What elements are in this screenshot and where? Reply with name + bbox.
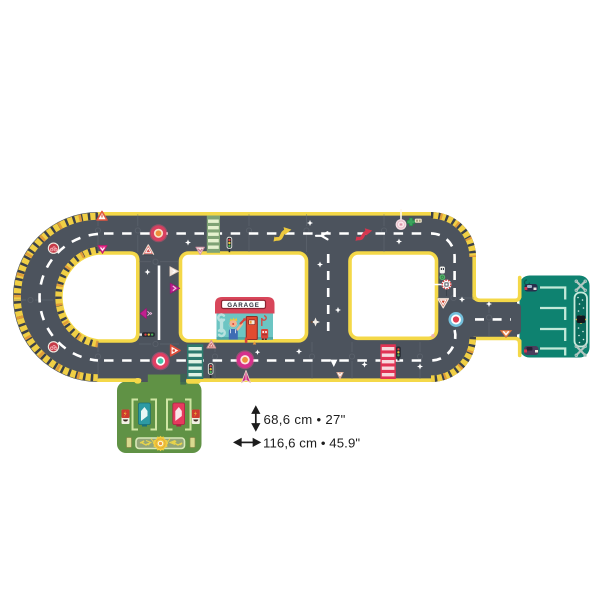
svg-text:116,6 cm • 45.9": 116,6 cm • 45.9" bbox=[263, 436, 360, 451]
svg-text:68,6 cm • 27": 68,6 cm • 27" bbox=[264, 412, 346, 427]
svg-text:GARAGE: GARAGE bbox=[227, 302, 260, 309]
